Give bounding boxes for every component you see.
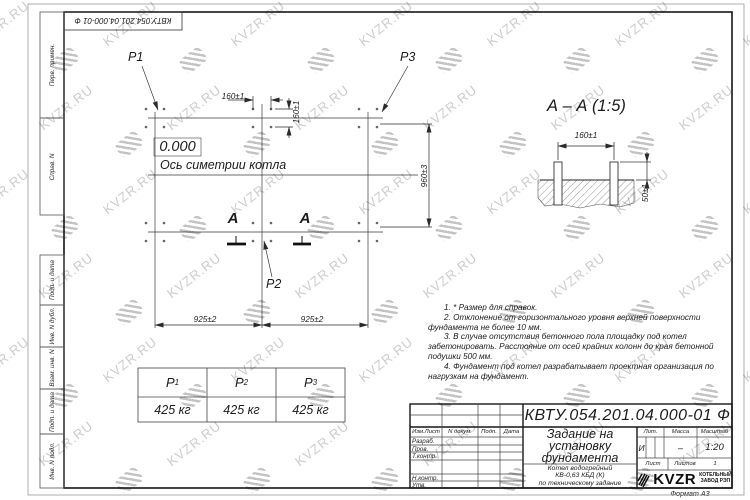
- outer-border: [28, 4, 744, 495]
- elevation-box: [154, 138, 201, 156]
- plan-axes: [148, 104, 418, 328]
- concrete-foundation: [538, 180, 634, 208]
- rotated-docnumber-box: [64, 12, 182, 30]
- anchor-bolt-right: [610, 162, 618, 205]
- drawing-sheet: КВТУ.054.201.04.000-01 Ф Перв. примен. С…: [0, 0, 750, 500]
- drawing-linework: [0, 0, 750, 500]
- margin-stamp-boxes: [40, 12, 64, 488]
- section-cut-marks: [227, 236, 311, 244]
- loads-table-grid: [138, 368, 345, 422]
- anchor-bolt-left: [554, 162, 562, 205]
- title-block-grid: [410, 404, 732, 488]
- section-view: [538, 142, 651, 208]
- plan-dimensions: [155, 96, 432, 325]
